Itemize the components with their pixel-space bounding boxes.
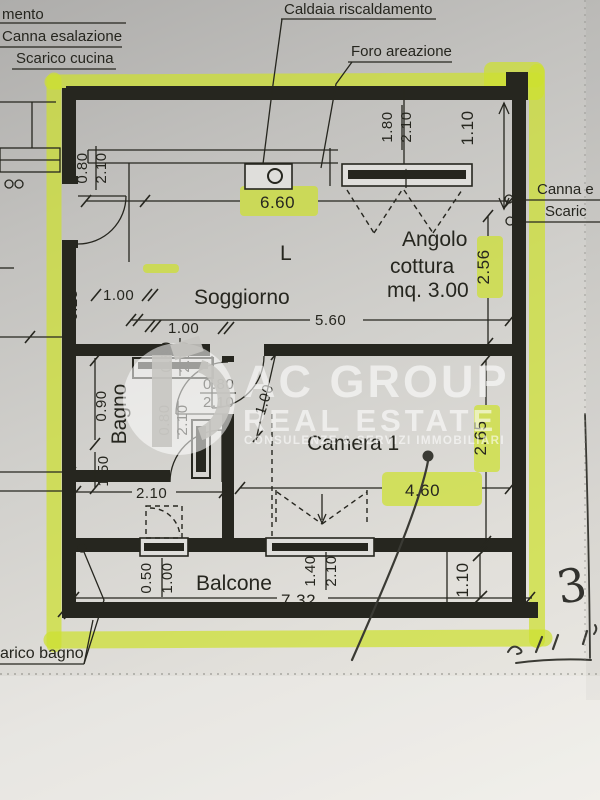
duct-circle-1: [5, 180, 13, 188]
dim-150: 1.50: [95, 455, 112, 486]
pen-dot: [423, 451, 434, 462]
watermark-tagline: CONSULENZE & SERVIZI IMMOBILIARI: [244, 434, 505, 447]
dim-256: 2.56: [474, 249, 493, 284]
label-scarico-right: Scaric: [545, 203, 587, 220]
wall-south-b: [188, 538, 266, 552]
wall-bath-south-a: [76, 470, 170, 482]
dim-bath-210: 2.10: [136, 485, 167, 502]
dim-kitchen-win-w: 1.80: [379, 111, 396, 142]
dim-560: 5.60: [315, 312, 346, 329]
dim-110-bottom: 1.10: [453, 562, 472, 597]
dim-100b: 1.00: [168, 320, 199, 337]
wall-right: [512, 72, 526, 606]
dim-kitchen-win-h: 2.10: [398, 111, 415, 142]
label-scarico-bagno: arico bagno: [0, 645, 84, 662]
dim-balcwin-l-h: 2.10: [323, 555, 340, 586]
duct-circle-2: [15, 180, 23, 188]
label-cottura: cottura: [390, 255, 455, 278]
wall-bath-east-a: [222, 356, 234, 362]
dim-110-top: 1.10: [458, 110, 477, 145]
dim-732: 7.32: [281, 591, 316, 610]
wall-top: [66, 86, 528, 100]
label-balcone: Balcone: [196, 572, 272, 595]
wall-divider-right: [264, 344, 512, 356]
dim-balcwin-s-w: 0.50: [138, 562, 155, 593]
wall-bath-south-b: [222, 470, 234, 482]
floorplan-drawing: mento Canna esalazione Scarico cucina Ca…: [0, 0, 600, 800]
label-canna-esalazione: Canna esalazione: [2, 28, 122, 45]
scanned-floorplan: mento Canna esalazione Scarico cucina Ca…: [0, 0, 600, 800]
dim-entry-door-w: 0.80: [74, 152, 91, 183]
label-letter-l: L: [280, 242, 292, 265]
dim-090: 0.90: [93, 390, 110, 421]
highlight-smudge: [143, 264, 179, 273]
dim-balcwin-l-w: 1.40: [302, 555, 319, 586]
dim-balcwin-s-h: 1.00: [159, 562, 176, 593]
dim-660: 6.60: [260, 193, 295, 212]
label-caldaia: Caldaia riscaldamento: [284, 1, 432, 18]
callout-leaders: [0, 19, 600, 664]
wall-south-c: [374, 538, 526, 552]
watermark-brand-bottom: REAL ESTATE: [243, 403, 497, 438]
dim-100a: 1.00: [103, 287, 134, 304]
label-mq300: mq. 3.00: [387, 279, 469, 302]
pen-number: 3: [553, 557, 591, 615]
label-mento: mento: [2, 6, 44, 23]
dim-025: 0.25: [64, 289, 81, 320]
highlight-bottom-wall: [52, 638, 544, 640]
wall-bath-east-c: [222, 482, 234, 538]
watermark-brand-top: AC GROUP: [243, 356, 510, 407]
label-soggiorno: Soggiorno: [194, 286, 290, 309]
label-foro-areazione: Foro areazione: [351, 43, 452, 60]
highlight-top-wall: [52, 80, 536, 82]
pen-squiggle-1: [508, 647, 521, 654]
walls: [62, 72, 538, 618]
label-scarico-cucina: Scarico cucina: [16, 50, 114, 67]
dim-entry-door-h: 2.10: [93, 152, 110, 183]
label-angolo: Angolo: [402, 228, 467, 251]
logo-shape-bar: [152, 355, 172, 447]
pen-corner-h: [516, 659, 591, 663]
